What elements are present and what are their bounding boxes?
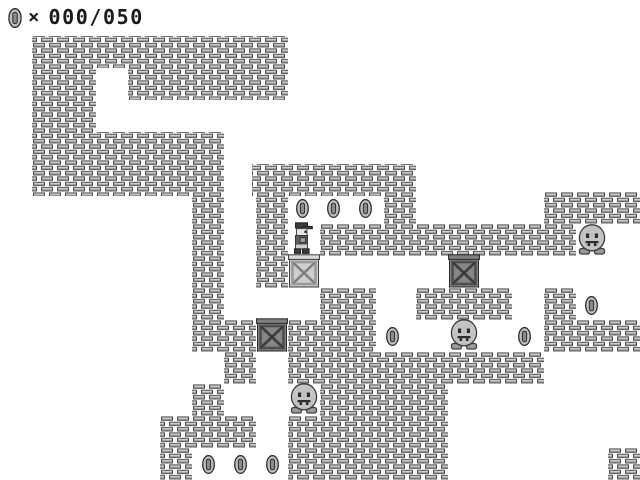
brick-block (288, 352, 544, 384)
coin (235, 456, 247, 474)
light-crate (289, 255, 320, 287)
dark-crate (257, 319, 288, 351)
brick-block (128, 68, 288, 100)
player-character (295, 223, 313, 254)
brick-block (192, 320, 256, 352)
coin (267, 456, 279, 474)
dark-crate (449, 255, 480, 287)
brick-block (544, 288, 576, 320)
brick-block (224, 352, 256, 384)
coin (360, 200, 372, 218)
brick-block (160, 416, 256, 448)
brick-block (608, 448, 640, 480)
brick-block (192, 384, 224, 416)
game-screen: × 000/050 (0, 0, 640, 480)
coin (297, 200, 309, 218)
coin-counter-value: 000/050 (48, 6, 144, 28)
brick-block (544, 192, 640, 224)
brick-block (252, 164, 416, 196)
coin (387, 328, 399, 346)
ghost-enemy (451, 320, 476, 349)
ghost-enemy (579, 225, 604, 254)
brick-block (192, 196, 224, 320)
brick-block (384, 196, 416, 224)
coin (586, 297, 598, 315)
hud-coin-counter: × 000/050 (8, 6, 144, 28)
brick-block (288, 320, 376, 352)
brick-block (320, 224, 576, 256)
brick-block (544, 320, 640, 352)
brick-block (256, 196, 288, 288)
brick-block (320, 288, 376, 320)
coin-icon (8, 8, 22, 28)
bricks-layer (32, 36, 640, 480)
brick-block (32, 132, 224, 196)
brick-block (32, 36, 288, 68)
level-viewport[interactable] (0, 0, 640, 480)
coin-count-separator: × (28, 7, 39, 27)
coin (519, 328, 531, 346)
brick-block (160, 448, 192, 480)
ghost-enemy (291, 384, 316, 413)
coin (203, 456, 215, 474)
brick-block (32, 68, 96, 100)
coin (328, 200, 340, 218)
brick-block (320, 384, 448, 416)
brick-block (32, 100, 96, 132)
brick-block (288, 416, 448, 480)
brick-block (416, 288, 512, 320)
